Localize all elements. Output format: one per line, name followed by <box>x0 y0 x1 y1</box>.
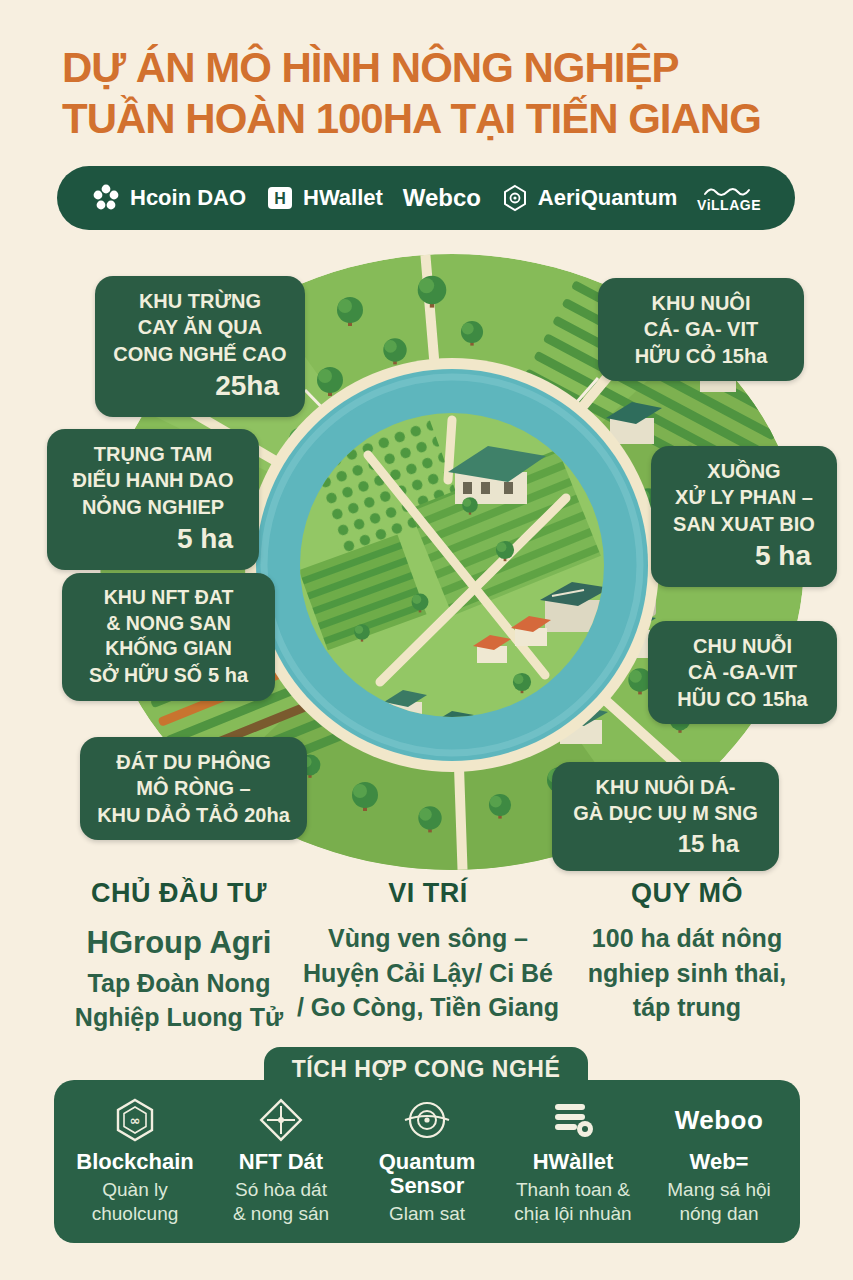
tech-item-blockchain: ∞ Blockchain Quàn lychuolcung <box>62 1094 208 1233</box>
zone-label-dao-center: TRỤNG TAM ĐIẾU HANH DAO NỎNG NGHIEP 5 ha <box>47 429 259 570</box>
info-title: CHỦ ĐẦU TƯ <box>48 878 310 909</box>
partner-name: HWallet <box>303 185 383 211</box>
zone-label-livestock-ne: KHU NUÔI CÁ- GA- VIT HỮU CỎ15ha <box>598 278 804 381</box>
zone-area: 5 ha <box>663 538 825 575</box>
partner-webco: Webco <box>403 184 481 212</box>
info-title: VI TRÍ <box>292 878 564 909</box>
weboo-wordmark: Weboo <box>675 1105 764 1136</box>
tech-item-hwallet: HWàllet Thanh toan &chịa lội nhuàn <box>500 1094 646 1233</box>
zone-area: 5 ha <box>208 664 248 686</box>
partner-hwallet: H HWallet <box>266 184 383 212</box>
shield-h-icon: H <box>266 184 294 212</box>
blockchain-hexagon-icon: ∞ <box>111 1096 159 1144</box>
zone-label-orchard: KHU TRỪNG CAY ĂN QUA CONG NGHẾ CAO 25ha <box>95 276 305 417</box>
zone-label-nft-land: KHU NFT ĐAT & NONG SAN KHỐNG GIAN SỞ HỮU… <box>62 573 275 701</box>
infographic-poster: DỰ ÁN MÔ HÌNH NÔNG NGHIỆP TUẦN HOÀN 100H… <box>0 0 853 1280</box>
partner-aeriquantum: AeriQuantum <box>501 184 677 212</box>
svg-text:∞: ∞ <box>130 1113 141 1128</box>
partner-name: AeriQuantum <box>538 185 677 211</box>
tech-panel: ∞ Blockchain Quàn lychuolcung NFT Dát Só… <box>54 1080 800 1243</box>
zone-area: 25ha <box>107 368 293 405</box>
info-column-scale: QUY MÔ 100 ha dát nông nghiep sinh thai,… <box>562 878 812 1025</box>
info-column-investor: CHỦ ĐẦU TƯ HGroup Agri Tap Đoàn Nong Ngh… <box>48 878 310 1035</box>
tech-item-nft: NFT Dát Só hòa dát& nong sán <box>208 1094 354 1233</box>
partner-village: ViLLAGE <box>697 184 761 212</box>
zone-area: 15ha <box>722 345 768 367</box>
zone-area: 15ha <box>762 688 808 710</box>
info-title: QUY MÔ <box>562 878 812 909</box>
zone-label-bio-plant: XUỒNG XỬ LY PHAN – SAN XUAT BIO 5 ha <box>651 446 837 587</box>
zone-area: 20ha <box>244 804 290 826</box>
quantum-sensor-icon <box>403 1096 451 1144</box>
tech-item-quantum: Quantum Sensor Glam sat <box>354 1094 500 1233</box>
zone-area: 5 ha <box>59 521 247 558</box>
flower-icon <box>91 183 121 213</box>
partner-name: Hcoin DAO <box>130 185 246 211</box>
nft-diamond-icon <box>257 1096 305 1144</box>
partner-logo-bar: Hcoin DAO H HWallet Webco AeriQuantum Vi… <box>57 166 795 230</box>
webco-wordmark: Webco <box>403 184 481 212</box>
partner-name: ViLLAGE <box>697 198 761 212</box>
page-title: DỰ ÁN MÔ HÌNH NÔNG NGHIỆP TUẦN HOÀN 100H… <box>62 42 802 144</box>
partner-hcoin-dao: Hcoin DAO <box>91 183 246 213</box>
tech-item-web: Weboo Web= Mang sá hộinóng dan <box>646 1094 792 1233</box>
svg-text:H: H <box>274 190 286 207</box>
title-line2: TUẦN HOÀN 100HA TẠI TIẾN GIANG <box>62 95 761 142</box>
script-squiggle-icon <box>703 184 755 198</box>
zone-label-poultry-se: KHU NUÔI DÁ- GÀ DỤC UỤ M SNG 15 ha <box>552 762 779 871</box>
hexagon-shield-icon <box>501 184 529 212</box>
wallet-stack-icon <box>547 1096 599 1144</box>
info-column-location: VI TRÍ Vùng ven sông – Huyện Cải Lậy/ Ci… <box>292 878 564 1025</box>
zone-area: 15 ha <box>564 828 767 860</box>
zone-label-livestock-e: CHU NUỖI CÀ -GA-VIT HŨU CO15ha <box>648 621 837 724</box>
title-line1: DỰ ÁN MÔ HÌNH NÔNG NGHIỆP <box>62 44 679 91</box>
zone-label-reserve-land: ĐÁT DU PHÔNG MÔ RÒNG – KHU DẢỎ TẢỎ20ha <box>80 737 307 840</box>
